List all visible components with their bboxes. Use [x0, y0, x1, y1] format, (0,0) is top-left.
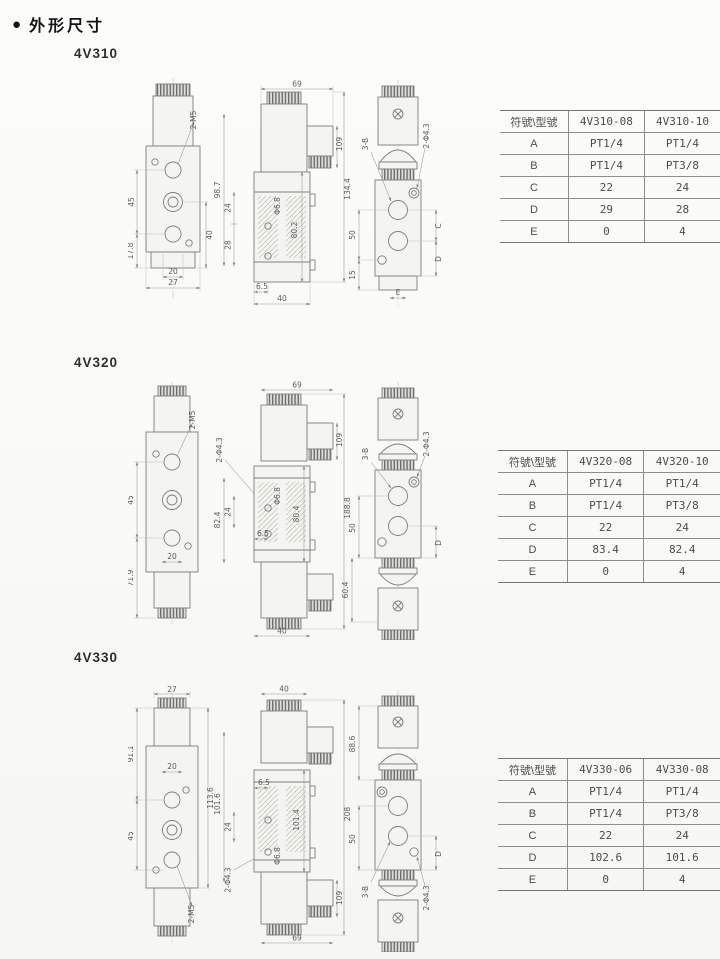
- dim-label: 101.4: [292, 809, 301, 831]
- solenoid-view: 3-B 2-Φ4.3 50 60.4 D: [341, 382, 443, 640]
- table-cell: PT3/8: [644, 155, 720, 177]
- dim-label: 101.6: [213, 793, 222, 815]
- dim-label: 69: [292, 381, 302, 390]
- dim-label: E: [396, 288, 401, 297]
- side-view: 40 6.5 101.4 Φ6.8 109 208 69: [254, 685, 352, 944]
- dim-label: 24: [224, 822, 233, 832]
- dim-label: 50: [348, 230, 357, 240]
- spec-table-4v310: 符號\型號4V310-084V310-10APT1/4PT1/4BPT1/4PT…: [500, 110, 720, 243]
- dim-label: 40: [277, 627, 287, 636]
- table-cell: 22: [567, 517, 644, 539]
- dim-label: 69: [292, 934, 302, 943]
- table-header-cell: 4V320-08: [567, 451, 644, 473]
- table-cell: 82.4: [644, 539, 720, 561]
- table-header-cell: 4V310-10: [644, 111, 720, 133]
- dim-label: 50: [348, 523, 357, 533]
- dim-label: 20: [168, 267, 178, 276]
- table-cell: B: [500, 155, 568, 177]
- catalog-page: ● 外形尺寸 4V310 4V320 4V330 2-M5 45 17.8 20: [0, 0, 720, 959]
- table-row: E04: [498, 869, 720, 891]
- dim-label: 208: [343, 807, 352, 822]
- dim-label: D: [434, 851, 443, 857]
- table-cell: PT1/4: [644, 473, 720, 495]
- table-cell: 28: [644, 199, 720, 221]
- table-row: APT1/4PT1/4: [500, 133, 720, 155]
- dim-label: 82.4: [213, 511, 222, 528]
- table-row: C2224: [498, 517, 720, 539]
- table-header-cell: 符號\型號: [498, 451, 567, 473]
- table-cell: 0: [567, 561, 644, 583]
- table-header-cell: 4V330-08: [644, 759, 720, 781]
- table-cell: PT3/8: [644, 803, 720, 825]
- port-label: 3-B: [361, 448, 370, 460]
- table-header-cell: 4V320-10: [644, 451, 720, 473]
- table-cell: A: [500, 133, 568, 155]
- table-cell: E: [498, 561, 567, 583]
- dim-label: 6.5: [256, 282, 268, 291]
- dim-label: 40: [279, 685, 289, 694]
- table-cell: A: [498, 781, 567, 803]
- dim-label: 28: [224, 240, 233, 250]
- dim-label: 2-M5: [188, 410, 197, 429]
- spec-table-4v330: 符號\型號4V330-064V330-08APT1/4PT1/4BPT1/4PT…: [498, 758, 720, 891]
- table-row: BPT1/4PT3/8: [500, 155, 720, 177]
- table-row: APT1/4PT1/4: [498, 473, 720, 495]
- table-row: E04: [498, 561, 720, 583]
- table-cell: PT3/8: [644, 495, 720, 517]
- dim-label: 109: [335, 891, 344, 906]
- dim-label: 91.1: [128, 745, 135, 762]
- dim-label: 2-Φ4.3: [224, 867, 233, 893]
- table-row: D102.6101.6: [498, 847, 720, 869]
- table-cell: D: [500, 199, 568, 221]
- side-view: 69 109 Φ6.8 80.2 134.4 6.5 40: [254, 80, 352, 307]
- port-label: 3-B: [361, 886, 370, 898]
- drawing-4v330: 27 20 91.1 45 113.6 2-M5 101.6: [128, 684, 480, 952]
- table-row: D2928: [500, 199, 720, 221]
- dim-label: 188.8: [343, 497, 352, 519]
- dimension-chain: 98.7 24 28: [213, 114, 237, 266]
- spec-table: 符號\型號4V310-084V310-10APT1/4PT1/4BPT1/4PT…: [500, 110, 720, 243]
- dim-label: 27: [168, 278, 178, 287]
- drawing-4v320: 2-M5 45 71.9 20 2-Φ4.3 24 82.4 69 109: [128, 378, 480, 640]
- table-cell: 0: [568, 221, 644, 243]
- table-cell: 24: [644, 177, 720, 199]
- table-header-row: 符號\型號4V310-084V310-10: [500, 111, 720, 133]
- drawing-4v310: 2-M5 45 17.8 20 27 40 98.7 24 28: [128, 74, 480, 324]
- dim-label: 6.5: [258, 778, 270, 787]
- table-cell: 24: [644, 825, 720, 847]
- table-row: BPT1/4PT3/8: [498, 495, 720, 517]
- table-cell: 101.6: [644, 847, 720, 869]
- table-header-cell: 符號\型號: [498, 759, 567, 781]
- dim-label: 60.4: [341, 581, 350, 598]
- dim-label: 109: [335, 137, 344, 152]
- page-title: ● 外形尺寸: [12, 12, 105, 36]
- dim-label: 20: [167, 762, 177, 771]
- table-row: C2224: [500, 177, 720, 199]
- table-row: C2224: [498, 825, 720, 847]
- dim-label: 24: [224, 507, 233, 517]
- table-cell: PT1/4: [567, 495, 644, 517]
- table-cell: B: [498, 495, 567, 517]
- table-cell: 102.6: [567, 847, 644, 869]
- spec-table-4v320: 符號\型號4V320-084V320-10APT1/4PT1/4BPT1/4PT…: [498, 450, 720, 583]
- dim-label: 45: [128, 495, 135, 505]
- table-cell: D: [498, 539, 567, 561]
- dim-label: 2-Φ4.3: [422, 431, 431, 457]
- front-view: 2-M5 45 17.8 20 27 40: [128, 78, 214, 298]
- bullet-icon: ●: [12, 17, 21, 32]
- dim-label: 80.4: [292, 505, 301, 522]
- solenoid-view: 88.6 50 D 3-B 2-Φ4.3: [348, 690, 443, 952]
- dim-label: Φ6.8: [273, 487, 282, 505]
- dim-label: 98.7: [213, 181, 222, 198]
- model-label-4v310: 4V310: [74, 46, 118, 61]
- dim-label: 27: [167, 685, 177, 694]
- table-cell: PT1/4: [567, 803, 644, 825]
- table-cell: 24: [644, 517, 720, 539]
- spec-table: 符號\型號4V330-064V330-08APT1/4PT1/4BPT1/4PT…: [498, 758, 720, 891]
- table-row: BPT1/4PT3/8: [498, 803, 720, 825]
- dim-label: 6.5: [257, 529, 269, 538]
- table-cell: B: [498, 803, 567, 825]
- dim-label: 2-Φ4.3: [215, 437, 224, 463]
- table-cell: 29: [568, 199, 644, 221]
- table-cell: PT1/4: [567, 781, 644, 803]
- dim-label: 45: [128, 197, 136, 207]
- table-row: E04: [500, 221, 720, 243]
- dim-label: 2-M5: [189, 110, 198, 129]
- table-cell: A: [498, 473, 567, 495]
- table-cell: E: [498, 869, 567, 891]
- table-header-row: 符號\型號4V320-084V320-10: [498, 451, 720, 473]
- port-label: 3-B: [361, 138, 370, 150]
- table-cell: PT1/4: [568, 155, 644, 177]
- table-cell: PT1/4: [644, 133, 720, 155]
- table-cell: PT1/4: [644, 781, 720, 803]
- dim-label: 134.4: [343, 178, 352, 200]
- spec-table: 符號\型號4V320-084V320-10APT1/4PT1/4BPT1/4PT…: [498, 450, 720, 583]
- dim-label: 20: [167, 552, 177, 561]
- dim-label: 80.2: [290, 221, 299, 238]
- table-cell: PT1/4: [568, 133, 644, 155]
- dim-label: 2-Φ4.3: [422, 885, 431, 911]
- dim-label: 24: [224, 203, 233, 213]
- dim-label: Φ6.8: [273, 197, 282, 215]
- solenoid-view: 3-B 2-Φ4.3 50 15 C D E: [348, 80, 443, 306]
- dim-label: D: [434, 256, 443, 262]
- table-header-row: 符號\型號4V330-064V330-08: [498, 759, 720, 781]
- dim-label: 69: [292, 80, 302, 89]
- table-cell: C: [500, 177, 568, 199]
- dim-label: D: [434, 540, 443, 546]
- table-cell: 4: [644, 561, 720, 583]
- table-cell: C: [498, 825, 567, 847]
- dim-label: 2-M5: [187, 904, 196, 923]
- table-cell: 22: [568, 177, 644, 199]
- dim-label: 71.9: [128, 569, 135, 586]
- table-header-cell: 符號\型號: [500, 111, 568, 133]
- dim-label: 109: [335, 433, 344, 448]
- table-cell: D: [498, 847, 567, 869]
- dim-label: 40: [205, 230, 214, 240]
- table-cell: 4: [644, 221, 720, 243]
- front-view: 2-M5 45 71.9 20: [128, 382, 198, 624]
- dim-label: 88.6: [348, 735, 357, 752]
- table-row: APT1/4PT1/4: [498, 781, 720, 803]
- page-title-text: 外形尺寸: [29, 12, 105, 36]
- table-cell: PT1/4: [567, 473, 644, 495]
- table-row: D83.482.4: [498, 539, 720, 561]
- dim-label: 2-Φ4.3: [422, 123, 431, 149]
- front-view: 27 20 91.1 45 113.6 2-M5: [128, 685, 215, 942]
- model-label-4v330: 4V330: [74, 650, 118, 665]
- table-cell: 0: [567, 869, 644, 891]
- dim-label: 50: [348, 834, 357, 844]
- dim-label: 17.8: [128, 242, 135, 259]
- table-header-cell: 4V310-08: [568, 111, 644, 133]
- dim-label: 45: [128, 831, 135, 841]
- table-cell: 83.4: [567, 539, 644, 561]
- side-view: 69 109 Φ6.8 80.4 6.5 188.8 40: [254, 381, 352, 637]
- table-header-cell: 4V330-06: [567, 759, 644, 781]
- table-cell: C: [498, 517, 567, 539]
- dim-label: 40: [277, 294, 287, 303]
- model-label-4v320: 4V320: [74, 355, 118, 370]
- table-cell: E: [500, 221, 568, 243]
- dim-label: 15: [348, 270, 357, 280]
- table-cell: 22: [567, 825, 644, 847]
- dim-label: Φ6.8: [273, 847, 282, 865]
- table-cell: 4: [644, 869, 720, 891]
- dim-label: C: [434, 223, 443, 228]
